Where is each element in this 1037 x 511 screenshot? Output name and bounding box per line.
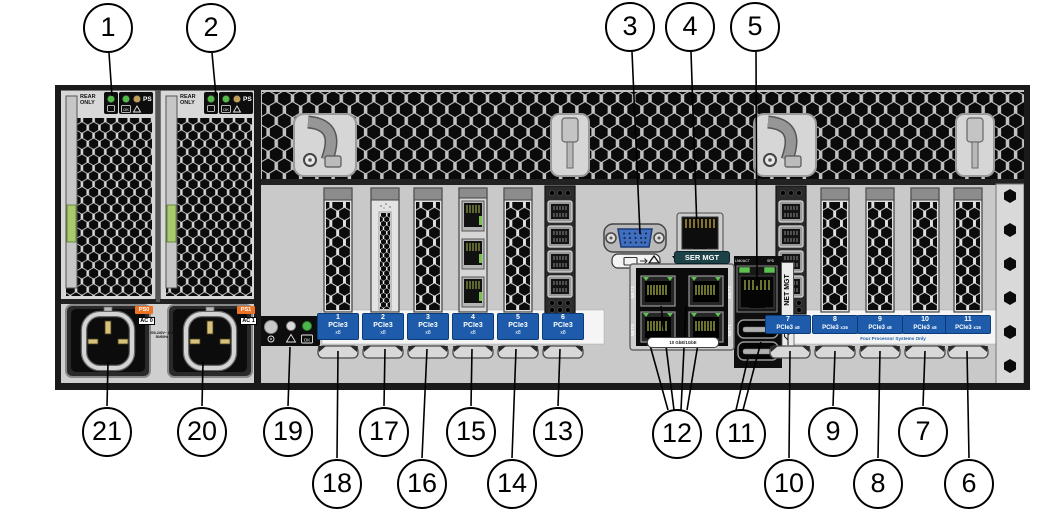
pcie-slot6-card [545, 186, 575, 314]
top-vent-mesh [262, 92, 1024, 179]
pcie-bracket-3 [408, 346, 448, 358]
rear-panel-graphic: OK OK [0, 0, 1037, 511]
pcie-bracket-2 [363, 346, 403, 358]
ps1-label: PS1 [237, 306, 255, 314]
net-mgt-label: NET MGT [781, 262, 794, 318]
callout-8: 8 [853, 459, 903, 509]
slot-label-4: 4 PCIe3 x8 [452, 313, 494, 340]
cpu-module-latch [754, 114, 816, 176]
slot-label-1: 1 PCIe3 x8 [317, 313, 359, 340]
locate-led [265, 321, 278, 334]
ps0-label: PS0 [135, 306, 153, 314]
pcie-slot4-card [459, 188, 487, 312]
net2-label: NET2 [630, 278, 637, 306]
net-mgt-link-led [739, 267, 750, 273]
psu-ac-led [107, 95, 115, 103]
net-mgt-spd-label: SPD [767, 259, 781, 263]
ok-icon-label: OK [123, 107, 129, 112]
net-speed-label: 10 GbE/1GbE [647, 337, 719, 348]
callout-20: 20 [177, 407, 227, 457]
fault-led [287, 322, 296, 331]
callout-16: 16 [397, 459, 447, 509]
ser-mgt-label: SER MGT [674, 251, 730, 264]
callout-1: 1 [83, 3, 133, 53]
net-mgt-speed-led [764, 267, 775, 273]
slot-label-11: 11 PCIe3 x16 [945, 315, 991, 334]
slot4-rj45-ports [462, 201, 484, 307]
vga-port [604, 224, 666, 252]
callout-12: 12 [652, 409, 702, 459]
pull-tab [551, 114, 589, 176]
pcie-slot5-filler [504, 188, 532, 312]
pcie-bracket-11 [948, 346, 988, 358]
callout-19: 19 [263, 407, 313, 457]
ac1-label: AC 1 [240, 317, 257, 325]
net-ports-block [630, 256, 734, 350]
slot-label-6: 6 PCIe3 x8 [542, 313, 584, 340]
server-rear-panel-callout-diagram: OK OK [0, 0, 1037, 511]
psu-handle [66, 96, 77, 288]
callout-2: 2 [186, 3, 236, 53]
ac-inlet-1 [168, 305, 252, 377]
net0-label: NET0 [630, 316, 637, 344]
pcie-bracket-5 [498, 346, 538, 358]
psu1-rear-only-label: REAR ONLY [180, 94, 204, 106]
callout-10: 10 [764, 459, 814, 509]
net2-port [641, 276, 675, 306]
pcie-slot3-filler [414, 188, 442, 312]
pcie-slot2-filler [371, 188, 399, 312]
ser-mgt-port [677, 213, 723, 253]
psu0-ps-label: PS [143, 96, 153, 103]
slot-label-10: 10 PCIe3 x8 [902, 315, 948, 334]
callout-15: 15 [446, 407, 496, 457]
pull-tab [956, 114, 994, 176]
cpu-module-latch [294, 114, 356, 176]
slot-label-7: 7 PCIe3 x8 [765, 315, 811, 334]
callout-14: 14 [487, 459, 537, 509]
pcie-bracket-6 [543, 346, 583, 358]
callout-7: 7 [898, 407, 948, 457]
psu-vent-mesh [166, 118, 252, 296]
net1-label: NET1 [727, 316, 734, 344]
callout-9: 9 [808, 407, 858, 457]
pcie-bracket-4 [453, 346, 493, 358]
psu-power-rating: 200-240V~ 12A 50/60Hz [150, 331, 174, 339]
pcie-slot8-filler [821, 188, 849, 312]
net3-label: NET3 [727, 278, 734, 306]
psu-ac-led [207, 95, 215, 103]
power-supply-0: OK [60, 90, 156, 302]
slot-label-5: 5 PCIe3 x8 [497, 313, 539, 340]
callout-4: 4 [665, 2, 715, 52]
psu1-ps-label: PS [243, 96, 253, 103]
psu-ok-led [222, 95, 230, 103]
ok-icon-label: OK [223, 107, 229, 112]
system-status-led-panel: OK [258, 316, 320, 346]
net3-port [689, 276, 723, 306]
slot-label-3: 3 PCIe3 x8 [407, 313, 449, 340]
callout-21: 21 [82, 407, 132, 457]
callout-13: 13 [533, 407, 583, 457]
pcie-slot1-filler [324, 188, 352, 312]
four-processor-note: Four Processor Systems Only [845, 336, 941, 341]
callout-3: 3 [605, 2, 655, 52]
callout-18: 18 [312, 459, 362, 509]
psu0-rear-only-label: REAR ONLY [80, 94, 104, 106]
ok-icon-label: OK [304, 337, 311, 342]
ok-led [303, 322, 312, 331]
callout-17: 17 [359, 407, 409, 457]
callout-6: 6 [944, 459, 994, 509]
callout-11: 11 [716, 409, 766, 459]
ac0-label: AC 0 [138, 317, 155, 325]
psu-fault-led [233, 95, 241, 103]
power-supply-1: OK [160, 90, 256, 302]
net-mgt-lnk-act-label: LNK/ACT [735, 259, 759, 263]
slot-label-8: 8 PCIe3 x16 [812, 315, 858, 334]
right-vent-strip [996, 184, 1024, 384]
psu-fault-led [133, 95, 141, 103]
slot-label-2: 2 PCIe3 x8 [362, 313, 404, 340]
pcie-slot10-filler [911, 188, 939, 312]
pcie-slot9-filler [866, 188, 894, 312]
psu-ok-led [122, 95, 130, 103]
psu-vent-mesh [66, 118, 152, 296]
callout-5: 5 [730, 2, 780, 52]
pcie-slot11-filler [954, 188, 982, 312]
psu-handle [166, 96, 177, 288]
slot-label-9: 9 PCIe3 x8 [857, 315, 903, 334]
